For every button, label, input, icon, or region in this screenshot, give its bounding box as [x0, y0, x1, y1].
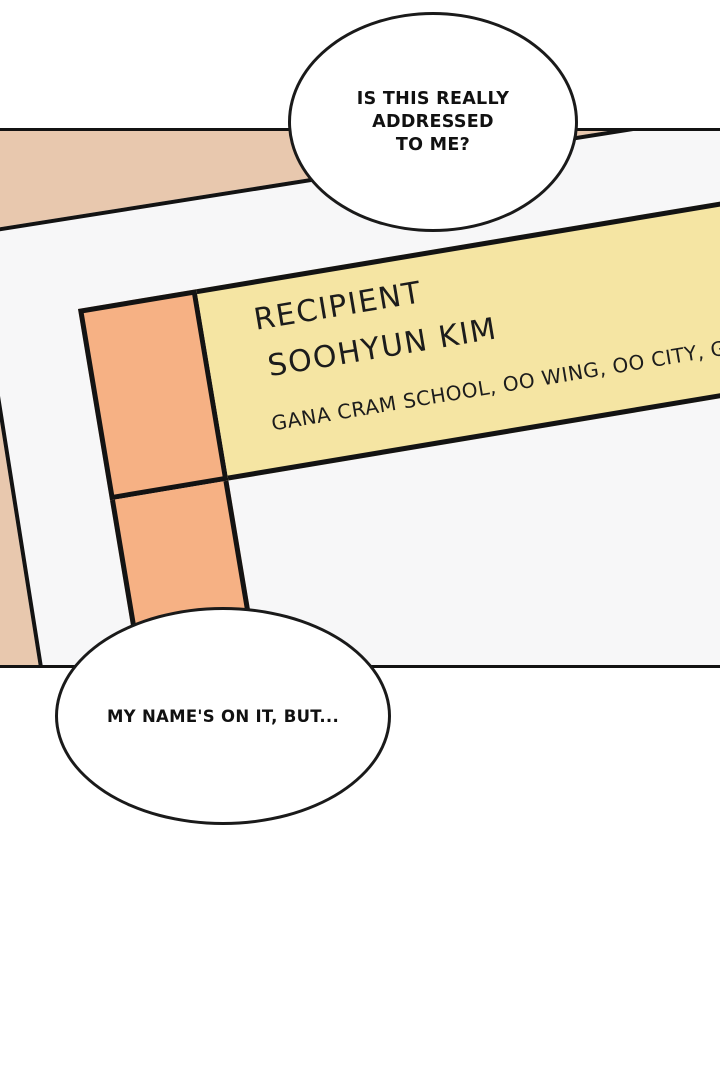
speech-bubble-top-line-3: TO ME?	[396, 134, 470, 157]
speech-bubble-bottom: MY NAME'S ON IT, BUT...	[55, 607, 391, 825]
comic-page: RECIPIENT SOOHYUN KIM GANA CRAM SCHOOL, …	[0, 0, 720, 1080]
speech-bubble-top: IS THIS REALLY ADDRESSED TO ME?	[288, 12, 578, 232]
speech-bubble-bottom-text: MY NAME'S ON IT, BUT...	[107, 707, 339, 726]
speech-bubble-top-line-1: IS THIS REALLY	[357, 88, 509, 111]
speech-bubble-top-line-2: ADDRESSED	[372, 111, 494, 134]
